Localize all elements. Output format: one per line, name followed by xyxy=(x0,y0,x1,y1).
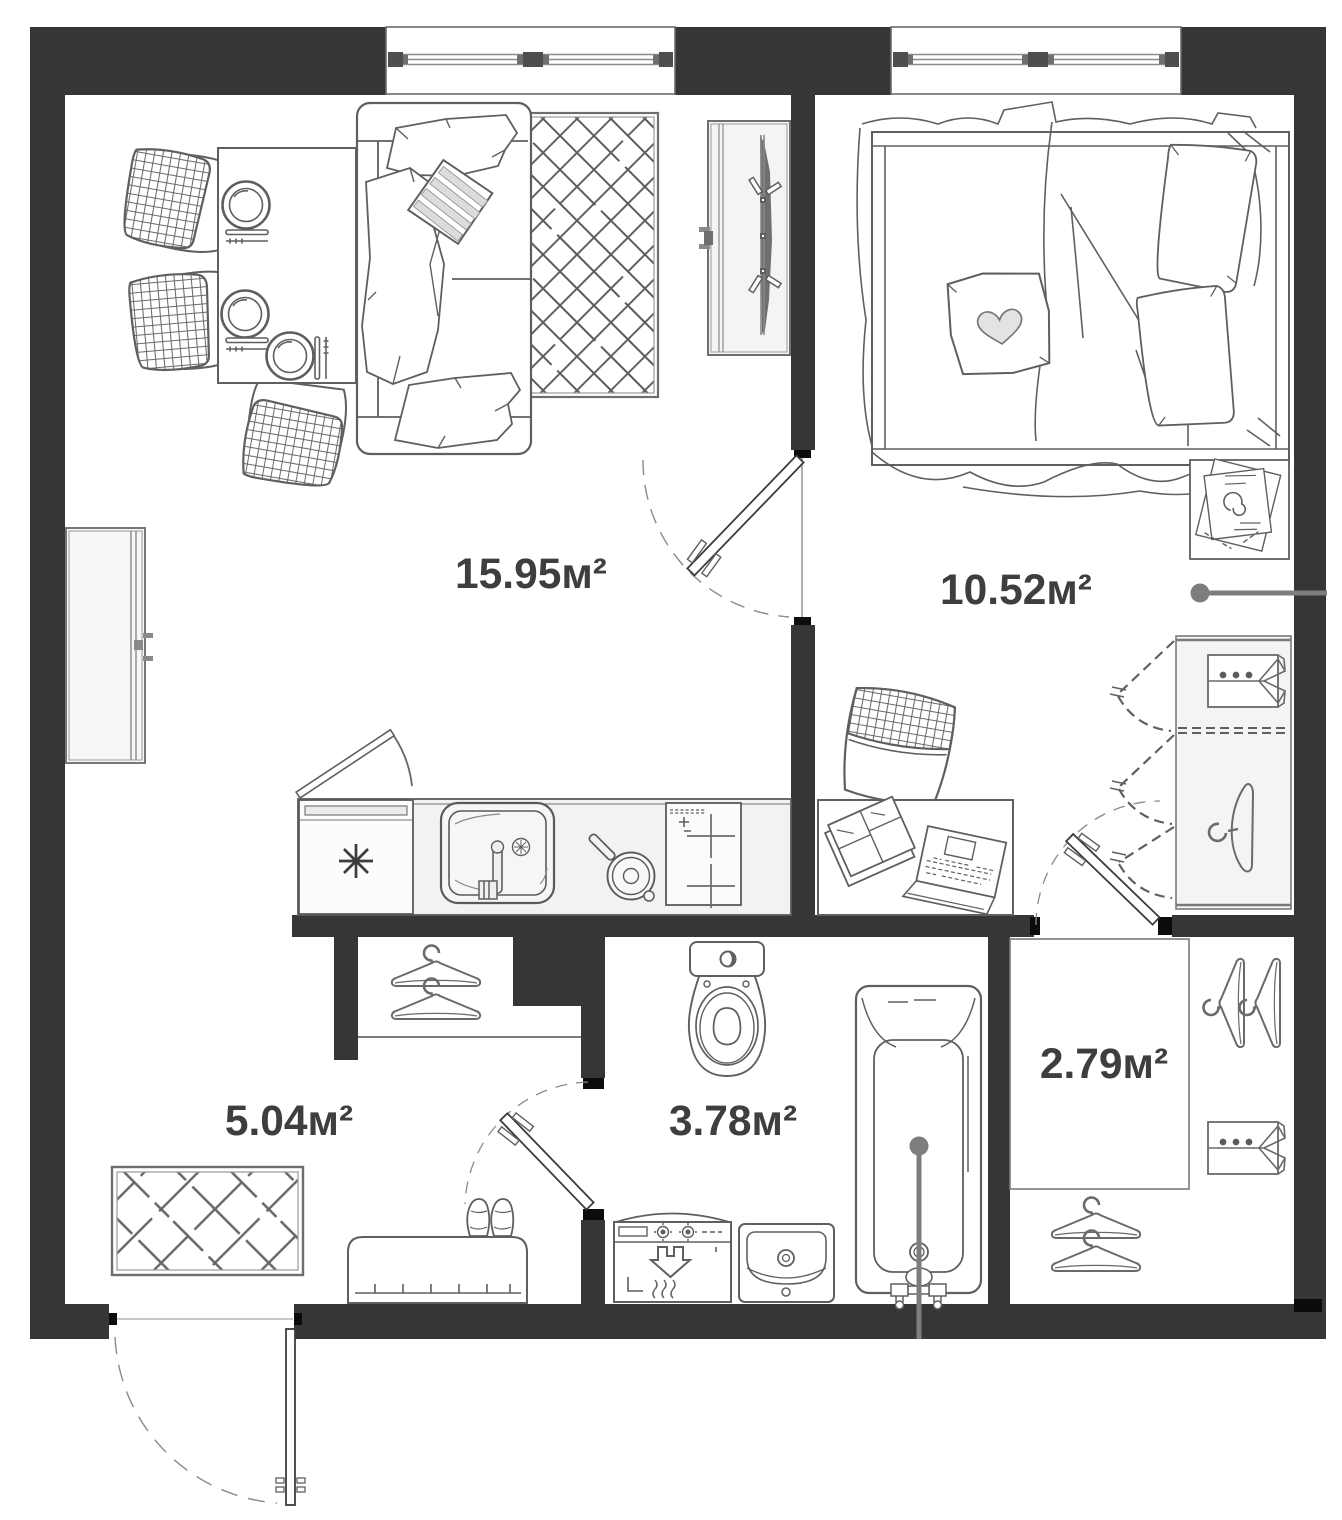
svg-text:3.78м²: 3.78м² xyxy=(669,1098,797,1145)
svg-text:5.04м²: 5.04м² xyxy=(225,1098,353,1145)
svg-text:15.95м²: 15.95м² xyxy=(455,551,607,598)
svg-text:2.79м²: 2.79м² xyxy=(1040,1041,1168,1088)
svg-text:10.52м²: 10.52м² xyxy=(940,567,1092,614)
